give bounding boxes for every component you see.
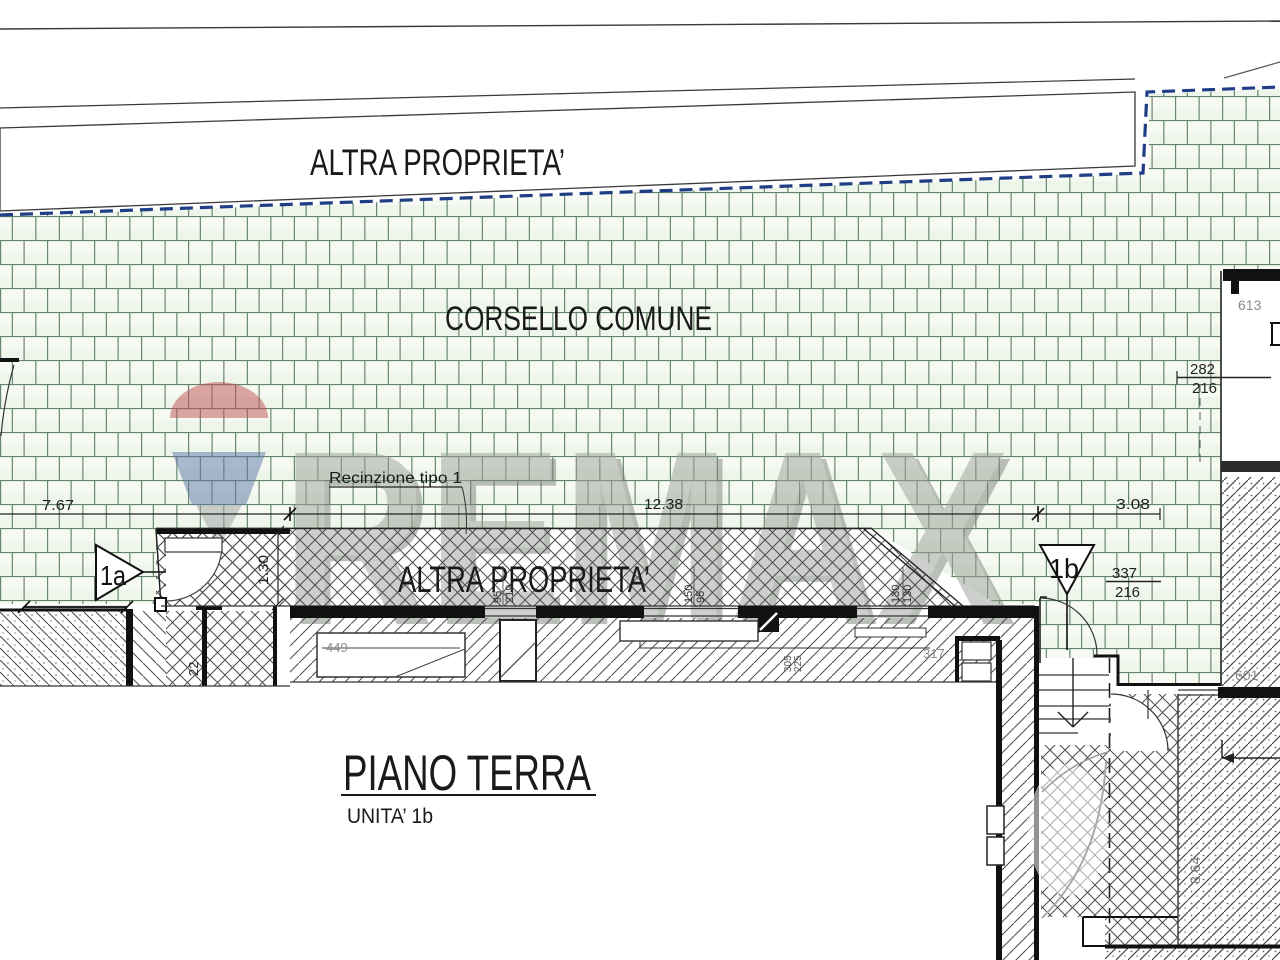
svg-text:130: 130: [890, 585, 902, 603]
svg-text:1a: 1a: [100, 560, 126, 591]
svg-text:CORSELLO COMUNE: CORSELLO COMUNE: [445, 300, 712, 338]
svg-text:1.30: 1.30: [255, 555, 271, 585]
svg-text:613: 613: [1238, 297, 1262, 313]
svg-text:8.64: 8.64: [1187, 857, 1203, 884]
svg-text:1b: 1b: [1049, 553, 1079, 584]
svg-text:95: 95: [492, 591, 504, 603]
svg-text:ALTRA PROPRIETA’: ALTRA PROPRIETA’: [310, 142, 565, 183]
svg-text:7.67: 7.67: [42, 497, 74, 514]
svg-text:150: 150: [683, 585, 695, 603]
svg-text:Recinzione tipo 1: Recinzione tipo 1: [329, 470, 462, 487]
svg-text:22: 22: [186, 662, 201, 676]
svg-text:449: 449: [326, 640, 348, 655]
svg-text:UNITA’ 1b: UNITA’ 1b: [347, 805, 433, 828]
svg-text:ALTRA PROPRIETA’: ALTRA PROPRIETA’: [398, 559, 650, 600]
svg-text:219: 219: [504, 585, 516, 603]
svg-text:PIANO TERRA: PIANO TERRA: [343, 745, 591, 801]
svg-text:337: 337: [1112, 565, 1137, 582]
svg-text:601: 601: [1235, 667, 1259, 683]
svg-text:3.08: 3.08: [1116, 496, 1150, 513]
svg-text:216: 216: [1115, 584, 1140, 601]
svg-text:216: 216: [1192, 380, 1217, 397]
svg-text:95: 95: [695, 591, 707, 603]
svg-text:282: 282: [1190, 361, 1215, 378]
svg-text:225: 225: [793, 655, 804, 672]
svg-text:12.38: 12.38: [644, 496, 683, 513]
svg-text:317: 317: [923, 646, 945, 661]
svg-text:130: 130: [902, 585, 914, 603]
